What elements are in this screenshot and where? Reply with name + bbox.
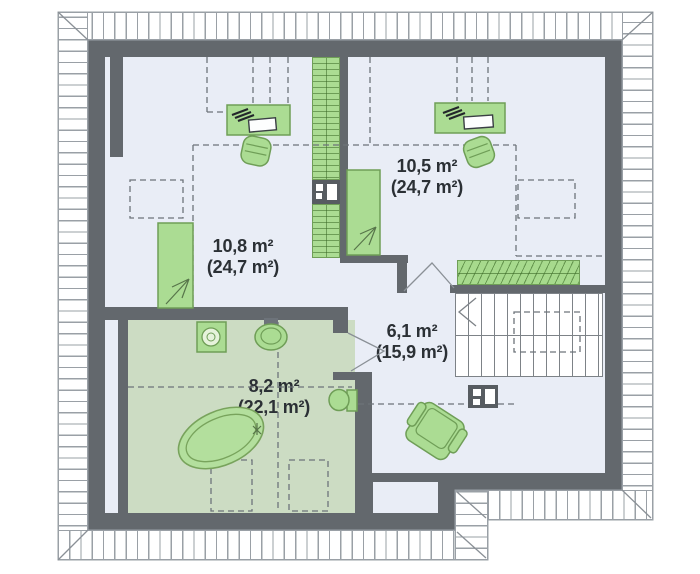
- toilet: [329, 390, 357, 412]
- door-bathroom: [348, 333, 384, 371]
- knee-wall-box-left: [130, 180, 183, 218]
- stair-headroom-box: [514, 312, 580, 352]
- office-chair-left: [239, 134, 272, 167]
- door-bedroom-right: [404, 263, 454, 291]
- monitor-right: [464, 115, 494, 129]
- chest-of-drawers: [312, 180, 340, 204]
- roof-outline-outer: [58, 12, 653, 560]
- washing-machine: [197, 322, 226, 352]
- floor-plan: 10,8 m² (24,7 m²) 10,5 m² (24,7 m²) 6,1 …: [0, 0, 700, 574]
- knee-wall-box-bath-2: [289, 460, 328, 511]
- monitor-left: [249, 118, 277, 132]
- bed-left: [158, 223, 193, 308]
- office-chair-right: [461, 134, 497, 170]
- roof-miter-lines: [58, 12, 653, 560]
- washbasin: [255, 318, 287, 350]
- knee-wall-box-right: [518, 180, 575, 218]
- bed-right: [347, 170, 380, 255]
- stair-direction-arrow: [459, 298, 476, 326]
- chimney-flue: [468, 385, 498, 408]
- skylight-lines-left: [207, 57, 288, 112]
- bathtub: [169, 395, 273, 481]
- plan-detail-overlay: [0, 0, 700, 574]
- armchair: [399, 397, 472, 465]
